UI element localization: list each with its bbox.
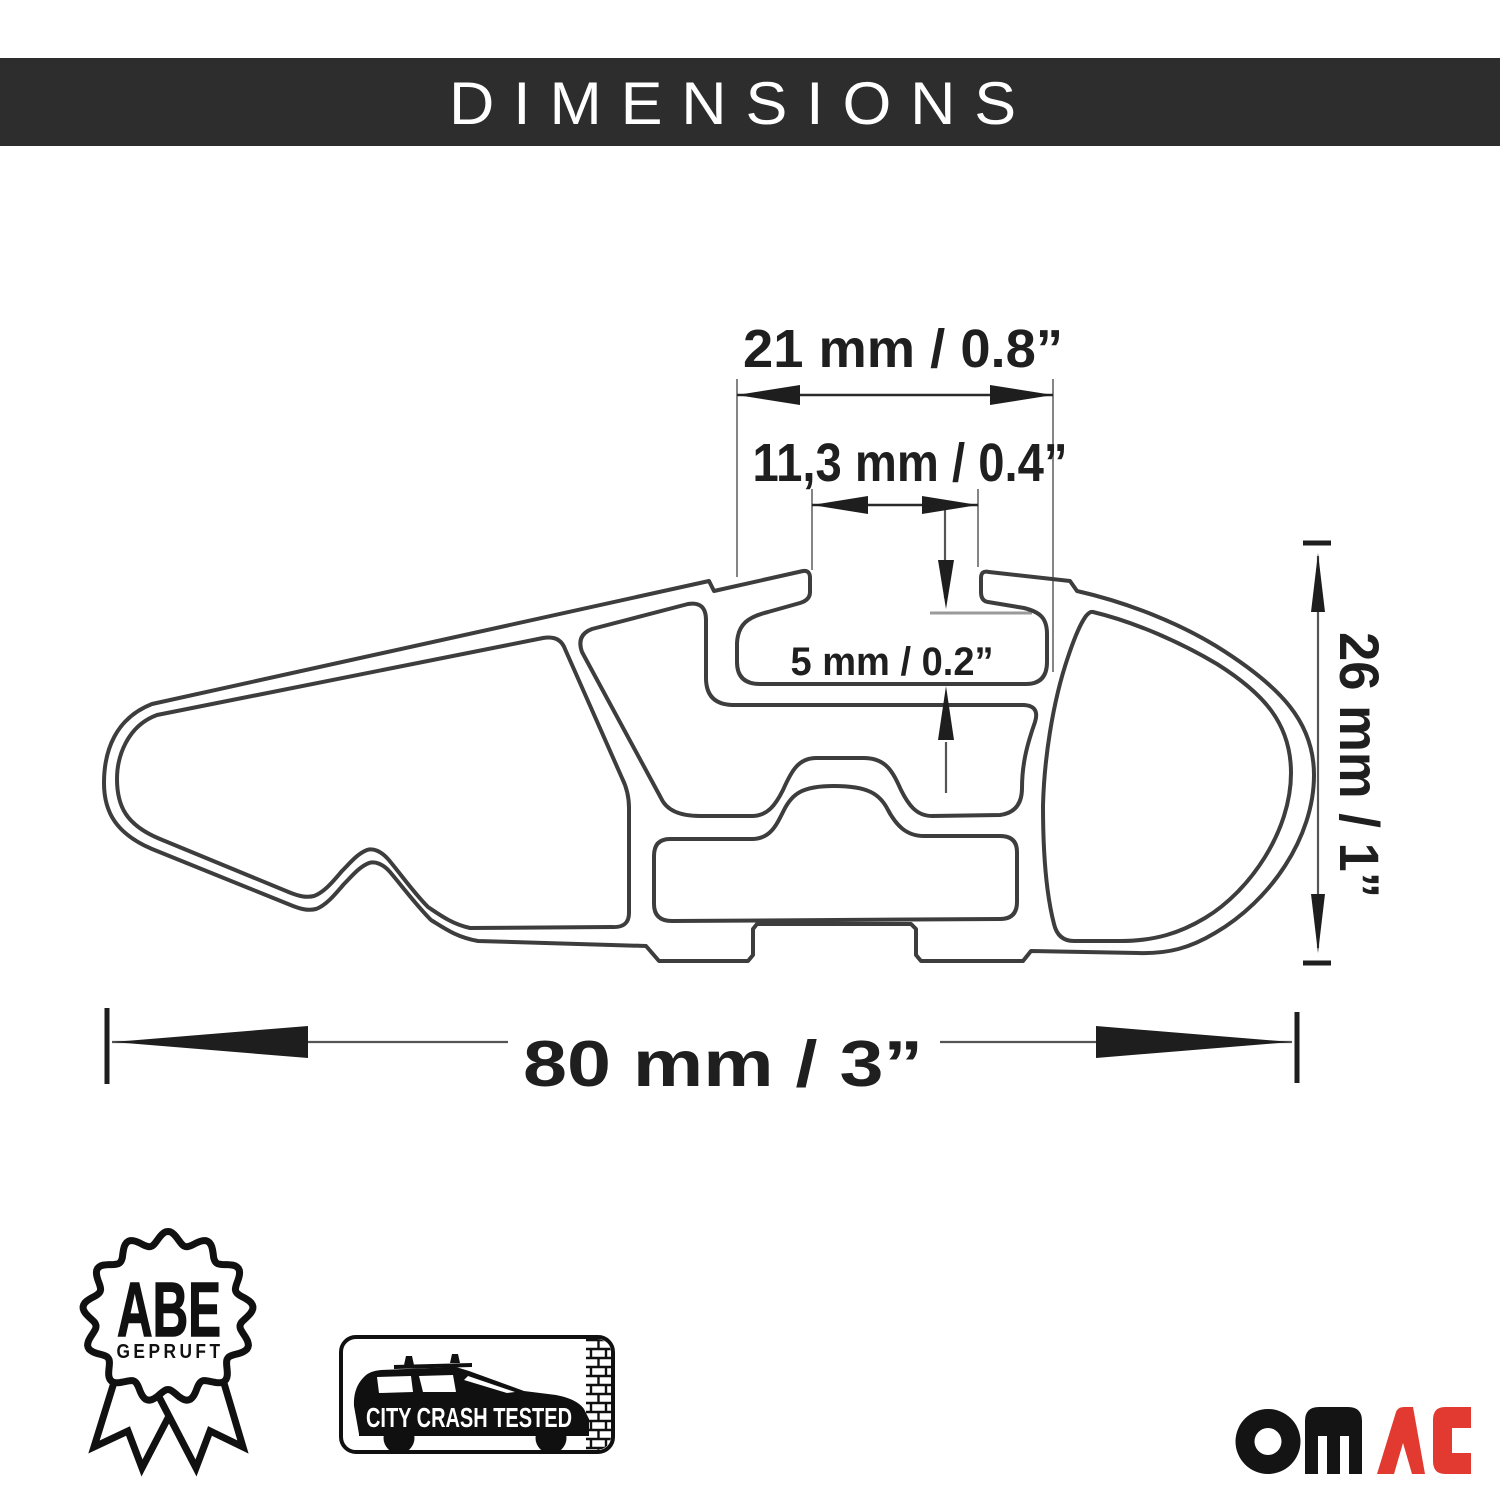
svg-text:26 mm / 1”: 26 mm / 1” (1328, 632, 1391, 898)
svg-text:21 mm / 0.8”: 21 mm / 0.8” (743, 319, 1063, 379)
svg-text:DIMENSIONS: DIMENSIONS (449, 70, 1035, 137)
svg-text:5 mm / 0.2”: 5 mm / 0.2” (791, 640, 994, 684)
svg-text:11,3 mm / 0.4”: 11,3 mm / 0.4” (753, 433, 1068, 493)
svg-text:GEPRUFT: GEPRUFT (117, 1341, 224, 1363)
svg-text:CITY CRASH TESTED: CITY CRASH TESTED (366, 1402, 572, 1433)
svg-text:80 mm / 3”: 80 mm / 3” (523, 1027, 923, 1100)
